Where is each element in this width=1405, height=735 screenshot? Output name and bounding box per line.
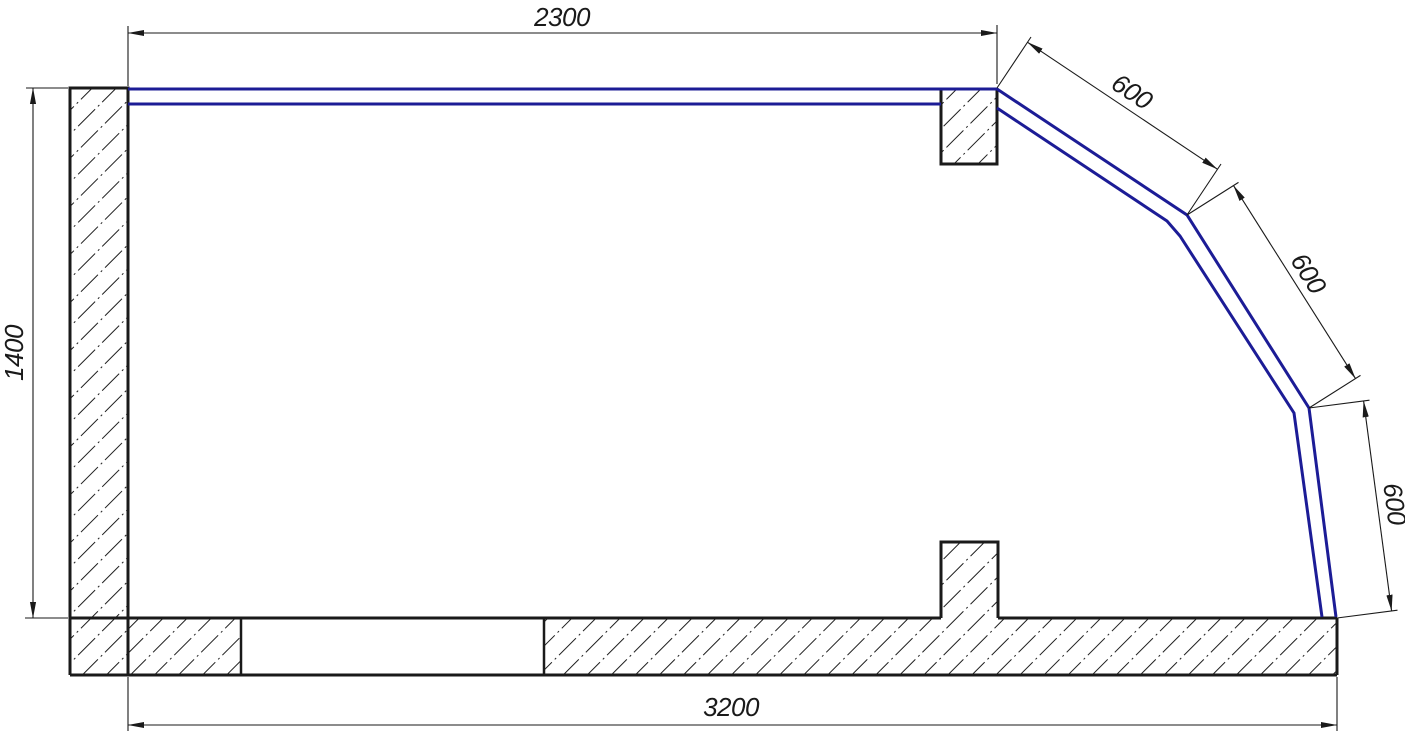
dim-slant-middle-label: 600 xyxy=(1285,247,1333,299)
dim-slant-middle-extension-lines xyxy=(1187,182,1361,408)
dim-slant-upper-extension-lines xyxy=(997,37,1221,215)
dim-left-group: 1400 xyxy=(0,88,68,618)
cad-drawing-canvas: 2300 1400 3200 600 600 600 xyxy=(0,0,1405,735)
bottom-wall-opening xyxy=(241,618,544,675)
dim-top-group: 2300 xyxy=(128,2,997,86)
dim-slant-upper-line xyxy=(1027,42,1217,169)
profile-outer-line xyxy=(128,89,1336,617)
profile-inner-line-right xyxy=(997,108,1322,617)
dim-top-extension-lines xyxy=(128,25,997,86)
dim-top-label: 2300 xyxy=(533,2,591,32)
dim-slant-upper-label: 600 xyxy=(1106,67,1158,116)
dim-slant-middle-group: 600 xyxy=(1187,182,1361,408)
dim-slant-upper-group: 600 xyxy=(997,37,1221,215)
profile-group xyxy=(128,89,1336,617)
dim-bottom-group: 3200 xyxy=(128,677,1337,731)
dim-left-label: 1400 xyxy=(0,324,29,381)
dim-left-extension-lines xyxy=(25,88,68,618)
left-wall xyxy=(70,88,128,618)
dim-slant-lower-label: 600 xyxy=(1377,481,1405,527)
dim-bottom-label: 3200 xyxy=(703,692,760,722)
bottom-support-block xyxy=(941,542,998,618)
cad-drawing-page: 2300 1400 3200 600 600 600 xyxy=(0,0,1405,735)
walls-group xyxy=(70,88,1337,675)
top-right-block xyxy=(941,88,997,164)
